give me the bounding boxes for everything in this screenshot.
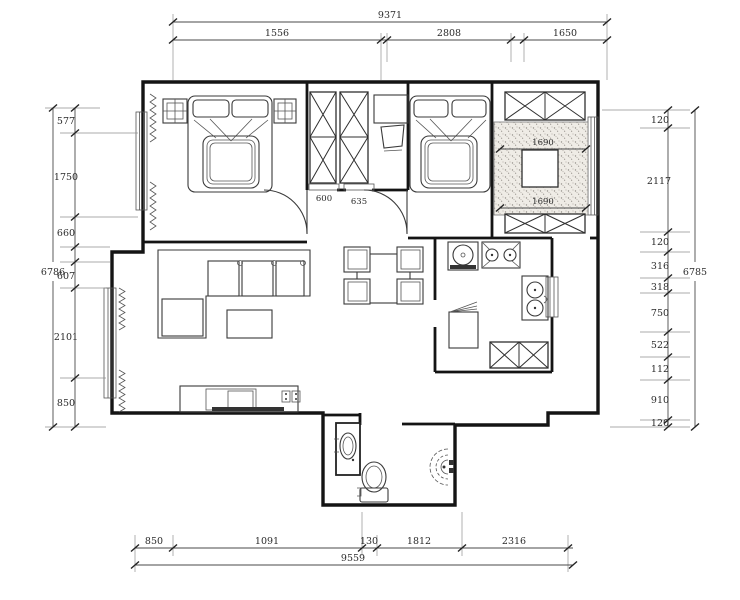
- dim-bottom-seg-1: 1091: [255, 536, 279, 547]
- dim-top-seg-0: 1556: [265, 28, 289, 39]
- floor-plan-drawing: 1690 1690: [0, 0, 740, 600]
- dim-bottom-seg-3: 1812: [407, 536, 431, 547]
- dim-top-overall: 9371: [378, 10, 402, 21]
- dimensions-bottom: 850 1091 130 1812 2316 9559: [131, 512, 577, 572]
- bedroom1-door: [264, 184, 339, 234]
- dim-left-seg-4: 2101: [54, 332, 78, 343]
- dim-right-seg-5: 750: [651, 308, 669, 319]
- dim-right-seg-1: 2117: [647, 176, 671, 187]
- dimensions-right: 6785 120 2117 120 316 318 750 522 112 91…: [602, 107, 707, 431]
- living-room-window: [104, 288, 125, 412]
- dim-left-seg-0: 577: [57, 116, 75, 127]
- balcony-dim-lower-label: 1690: [532, 197, 554, 207]
- dim-bottom-seg-0: 850: [145, 536, 163, 547]
- sofa: [158, 250, 310, 338]
- dim-right-seg-4: 318: [651, 282, 669, 293]
- dim-left-seg-2: 660: [57, 228, 75, 239]
- dim-right-seg-2: 120: [651, 237, 669, 248]
- dining-chair: [344, 279, 370, 304]
- bedroom1-nightstand-right: [274, 99, 296, 123]
- dim-left-seg-1: 1750: [54, 172, 78, 183]
- kitchen-sink: [522, 276, 548, 320]
- hall-opening-dims: 600 635: [316, 194, 367, 207]
- hall-opening-right-label: 635: [351, 197, 367, 207]
- hall-wardrobe-1: [310, 92, 336, 183]
- bedroom2-bed: [410, 96, 490, 192]
- dim-right-seg-6: 522: [651, 340, 669, 351]
- coffee-table: [227, 310, 272, 338]
- dim-right-seg-8: 910: [651, 395, 669, 406]
- dining-chair: [397, 247, 423, 272]
- tv-stand: [180, 386, 300, 412]
- dim-right-seg-3: 316: [651, 261, 669, 272]
- desk-chair: [381, 125, 404, 151]
- hall-wardrobe-2: [340, 92, 368, 183]
- bedroom1-nightstand-left: [163, 99, 187, 123]
- balcony-cabinet-bottom: [505, 214, 585, 233]
- dim-top-seg-2: 1650: [553, 28, 577, 39]
- dim-bottom-overall: 9559: [341, 553, 365, 564]
- dim-right-seg-7: 112: [651, 364, 669, 375]
- bedroom2-door: [344, 184, 407, 234]
- desk: [374, 95, 408, 123]
- bedroom1-bed: [188, 96, 272, 192]
- hall-opening-left-label: 600: [316, 194, 332, 204]
- dim-bottom-seg-2: 130: [360, 536, 378, 547]
- fridge: [449, 302, 478, 348]
- dim-top-seg-1: 2808: [437, 28, 461, 39]
- dim-left-seg-3: 607: [57, 271, 75, 282]
- shower-head: [430, 449, 454, 485]
- balcony-cabinet-top: [505, 92, 585, 120]
- dimensions-top: 9371 1556 2808 1650: [169, 10, 611, 80]
- dining-chair: [397, 279, 423, 304]
- dim-right-seg-9: 120: [651, 418, 669, 429]
- kitchen-cabinet: [490, 342, 548, 368]
- balcony-dim-upper-label: 1690: [532, 138, 554, 148]
- bedroom1-window: [136, 94, 156, 230]
- dim-right-seg-0: 120: [651, 115, 669, 126]
- toilet: [357, 462, 388, 502]
- balcony-storage: 1690 1690: [494, 92, 590, 233]
- bathroom-vanity: [334, 423, 360, 475]
- balcony-inner-box: [522, 150, 558, 187]
- dim-right-overall: 6785: [683, 267, 707, 278]
- tv-panel: [212, 407, 284, 411]
- stove: [482, 242, 520, 268]
- dim-bottom-seg-4: 2316: [502, 536, 526, 547]
- floor-plan-canvas: 1690 1690: [0, 0, 740, 600]
- washing-machine: [448, 242, 478, 270]
- dining-chair: [344, 247, 370, 272]
- dim-left-seg-5: 850: [57, 398, 75, 409]
